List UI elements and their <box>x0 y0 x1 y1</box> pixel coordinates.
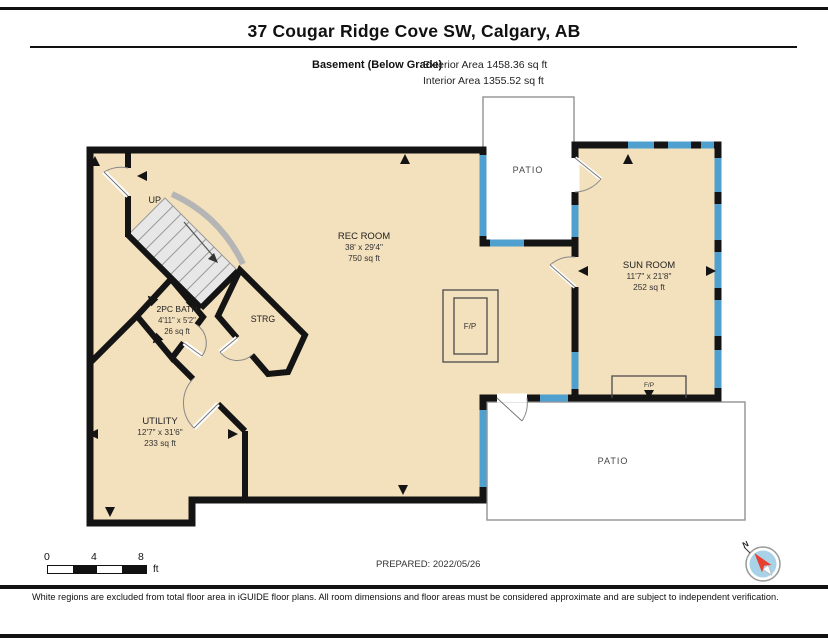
scale-tick-0: 0 <box>44 551 50 563</box>
sun-room-name: SUN ROOM <box>623 260 675 271</box>
bath-dims: 4'11" x 5'2" <box>158 316 196 325</box>
patio-top-label: PATIO <box>513 165 544 175</box>
sun-room-area: 252 sq ft <box>633 282 666 292</box>
sun-room-dims: 11'7" x 21'8" <box>627 271 672 281</box>
utility-dims: 12'7" x 31'6" <box>137 427 183 437</box>
stairs-up-label: UP <box>148 195 161 205</box>
fireplace-main-label: F/P <box>464 322 476 331</box>
patio-bottom-label: PATIO <box>598 456 629 466</box>
scale-tick-8: 8 <box>138 551 144 563</box>
fireplace-sun-label: F/P <box>644 382 654 389</box>
scale-unit-label: ft <box>153 564 159 575</box>
bottom-border-line <box>0 634 828 638</box>
prepared-date: PREPARED: 2022/05/26 <box>376 559 480 570</box>
storage-name: STRG <box>251 314 276 324</box>
scale-bar: 0 4 8 ft <box>47 551 217 581</box>
utility-name: UTILITY <box>142 416 178 427</box>
patio-top-region: PATIO <box>483 97 574 243</box>
footer-rule <box>0 585 828 589</box>
patio-bottom-region: PATIO <box>487 402 745 520</box>
utility-area: 233 sq ft <box>144 438 177 448</box>
rec-room-dims: 38' x 29'4" <box>345 242 383 252</box>
bath-area: 26 sq ft <box>164 327 190 336</box>
floorplan-drawing: PATIO PATIO UP <box>0 0 828 640</box>
rec-room-name: REC ROOM <box>338 231 390 242</box>
disclaimer-text: White regions are excluded from total fl… <box>32 592 812 602</box>
scale-bar-strip <box>47 565 147 574</box>
rec-room-area: 750 sq ft <box>348 253 381 263</box>
scale-tick-4: 4 <box>91 551 97 563</box>
bath-name: 2PC BATH <box>157 304 198 314</box>
compass: N <box>741 539 780 581</box>
floorplan-page: 37 Cougar Ridge Cove SW, Calgary, AB Bas… <box>0 0 828 640</box>
